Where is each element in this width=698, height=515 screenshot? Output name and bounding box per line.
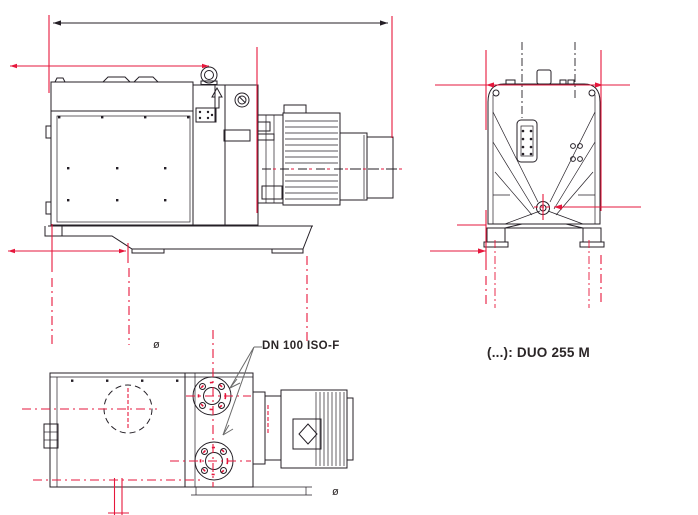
side-dimension-lines bbox=[8, 15, 392, 345]
terminal-box bbox=[284, 105, 306, 113]
flange-label-leaders bbox=[223, 347, 262, 435]
center-cross-marker bbox=[534, 194, 552, 220]
diameter-symbol-top: ø bbox=[153, 339, 160, 351]
side-view bbox=[45, 67, 406, 253]
top-view bbox=[44, 373, 353, 495]
top-handles bbox=[103, 77, 158, 82]
dimension-drawing-canvas: DN 100 ISO-F (...): DUO 255 M ø ø bbox=[0, 0, 698, 515]
base-skid bbox=[45, 226, 313, 253]
diameter-symbol-bottom: ø bbox=[332, 486, 339, 498]
fan-cover bbox=[340, 133, 367, 200]
flange-size-label: DN 100 ISO-F bbox=[262, 340, 340, 352]
flow-arrow-icon bbox=[212, 88, 222, 108]
front-dimension-lines bbox=[430, 50, 641, 308]
side-body bbox=[51, 82, 193, 225]
pump-model-caption: (...): DUO 255 M bbox=[487, 345, 590, 360]
motor-side bbox=[258, 105, 393, 205]
side-bolts bbox=[58, 116, 189, 201]
oil-filler-icon bbox=[235, 93, 249, 107]
gas-ballast-knob bbox=[44, 424, 58, 448]
exhaust-stub bbox=[537, 70, 551, 84]
front-body bbox=[488, 84, 600, 224]
name-plate bbox=[224, 130, 250, 141]
diamond-logo-icon bbox=[299, 424, 317, 444]
pump-dimension-drawing bbox=[0, 0, 698, 515]
sight-glass bbox=[517, 120, 537, 162]
eyebolt-icon bbox=[201, 67, 217, 85]
front-view bbox=[350, 42, 604, 247]
top-body bbox=[50, 373, 253, 487]
